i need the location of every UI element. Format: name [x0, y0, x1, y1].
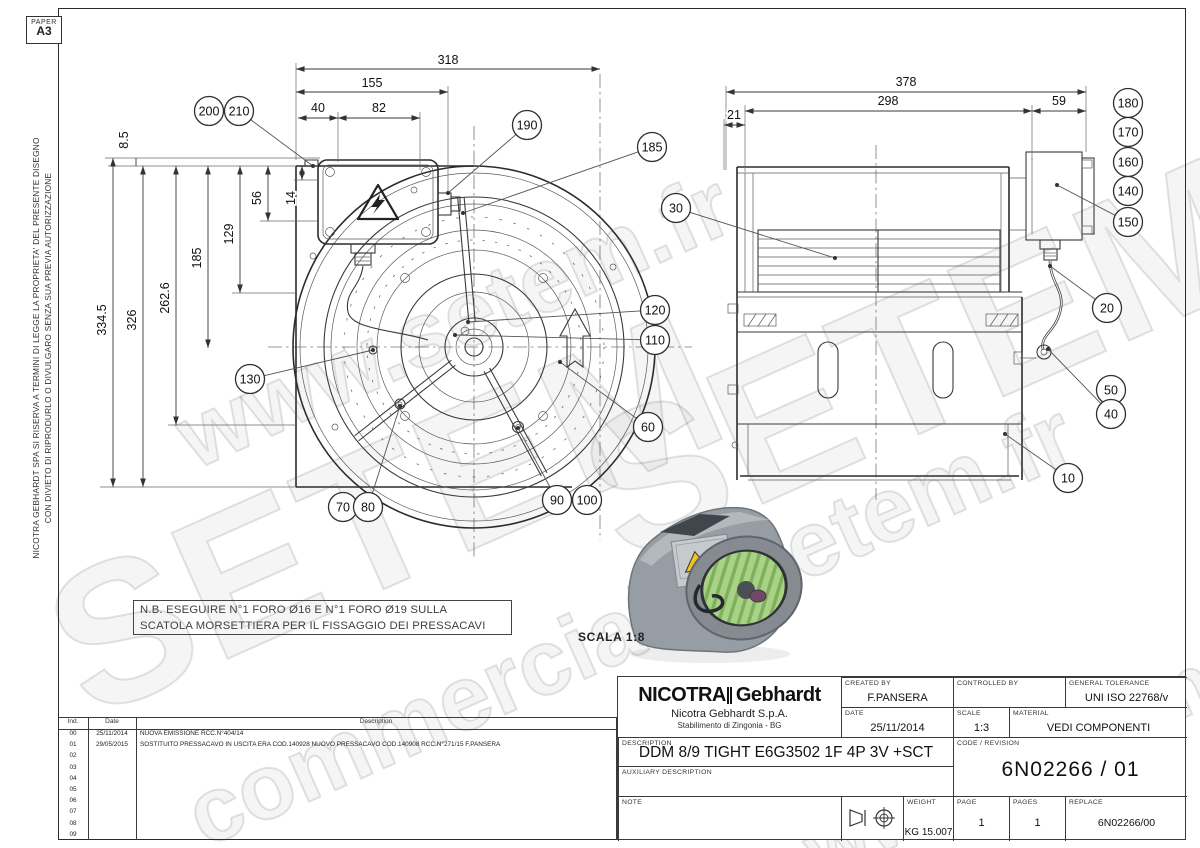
revision-table: Ind. Date Description 0025/11/2014NUOVA …	[58, 717, 617, 840]
code-revision-value: 6N02266 / 01	[954, 758, 1187, 782]
revision-row-02: 02	[58, 752, 616, 763]
note-line2: SCATOLA MORSETTIERA PER IL FISSAGGIO DEI…	[140, 619, 511, 635]
drawing-sheet: SETEM SETEM www.setem.fr commercial@sete…	[0, 0, 1200, 848]
code-revision-label: CODE / REVISION	[957, 740, 1019, 747]
material-value: VEDI COMPONENTI	[1010, 722, 1187, 734]
description-value: DDM 8/9 TIGHT E6G3502 1F 4P 3V +SCT	[619, 744, 953, 762]
auxiliary-description-label: AUXILIARY DESCRIPTION	[622, 769, 712, 776]
paper-size: A3	[27, 26, 61, 37]
revision-row-01: 0129/05/2015SOSTITUITO PRESSACAVO IN USC…	[58, 741, 616, 752]
note-line1: N.B. ESEGUIRE N°1 FORO Ø16 E N°1 FORO Ø1…	[140, 603, 511, 619]
revision-row-09: 09	[58, 831, 616, 842]
revision-row-06: 06	[58, 797, 616, 808]
pages-label: PAGES	[1013, 799, 1037, 806]
revision-row-08: 08	[58, 820, 616, 831]
scale-label: SCALE	[957, 710, 981, 717]
replace-label: REPLACE	[1069, 799, 1103, 806]
plant-name: Stabilimento di Zingonia - BG	[677, 721, 781, 730]
weight-value: KG 15.007	[904, 827, 953, 838]
logo-left: NICOTRA	[638, 684, 726, 707]
rev-header-description: Description	[136, 718, 616, 725]
pages-cell: PAGES 1	[1009, 796, 1065, 841]
controlled-by-label: CONTROLLED BY	[957, 680, 1018, 687]
company-name: Nicotra Gebhardt S.p.A.	[671, 708, 788, 720]
logo-separator	[727, 687, 729, 704]
revision-row-03: 03	[58, 764, 616, 775]
created-by-cell: CREATED BY F.PANSERA	[841, 677, 953, 707]
weight-cell: WEIGHT KG 15.007	[903, 796, 953, 841]
material-label: MATERIAL	[1013, 710, 1049, 717]
date-value: 25/11/2014	[842, 722, 953, 734]
page-label: PAGE	[957, 799, 977, 806]
rev-header-date: Date	[88, 718, 136, 725]
logo-cell: NICOTRA Gebhardt Nicotra Gebhardt S.p.A.…	[618, 677, 841, 737]
logo-right: Gebhardt	[736, 684, 821, 707]
auxiliary-description-cell: AUXILIARY DESCRIPTION	[618, 766, 953, 796]
projection-symbol-cell	[841, 796, 903, 841]
material-cell: MATERIAL VEDI COMPONENTI	[1009, 707, 1187, 737]
scale-cell: SCALE 1:3	[953, 707, 1009, 737]
replace-value: 6N02266/00	[1066, 817, 1187, 829]
nicotra-gebhardt-logo: NICOTRA Gebhardt	[638, 684, 821, 707]
revision-row-00: 0025/11/2014NUOVA EMISSIONE RCC.N°404/14	[58, 730, 616, 741]
general-tolerance-value: UNI ISO 22768/v	[1066, 692, 1187, 704]
scale-value: 1:3	[954, 722, 1009, 734]
created-by-value: F.PANSERA	[842, 692, 953, 704]
revision-row-04: 04	[58, 775, 616, 786]
rev-header-ind: Ind.	[58, 718, 88, 725]
page-value: 1	[954, 817, 1009, 829]
revision-row-05: 05	[58, 786, 616, 797]
projection-symbol-icon	[842, 797, 902, 840]
paper-size-box: PAPER A3	[26, 16, 62, 44]
note-label: NOTE	[622, 799, 642, 806]
disclaimer-line1: NICOTRA GEBHARDT SPA SI RISERVA A TERMIN…	[31, 48, 43, 648]
iso-scale-label: SCALA 1:8	[578, 630, 645, 644]
disclaimer-line2: CON DIVIETO DI RIPRODURLO O DIVULGARO SE…	[43, 48, 55, 648]
description-cell: DESCRIPTION DDM 8/9 TIGHT E6G3502 1F 4P …	[618, 737, 953, 766]
pages-value: 1	[1010, 817, 1065, 829]
page-cell: PAGE 1	[953, 796, 1009, 841]
ownership-disclaimer: NICOTRA GEBHARDT SPA SI RISERVA A TERMIN…	[31, 48, 55, 648]
note-cell: NOTE	[618, 796, 841, 841]
general-tolerance-label: GENERAL TOLERANCE	[1069, 680, 1150, 687]
date-label: DATE	[845, 710, 864, 717]
controlled-by-cell: CONTROLLED BY	[953, 677, 1065, 707]
revision-header: Ind. Date Description	[58, 718, 616, 730]
replace-cell: REPLACE 6N02266/00	[1065, 796, 1187, 841]
date-cell: DATE 25/11/2014	[841, 707, 953, 737]
drilling-note: N.B. ESEGUIRE N°1 FORO Ø16 E N°1 FORO Ø1…	[133, 600, 512, 635]
general-tolerance-cell: GENERAL TOLERANCE UNI ISO 22768/v	[1065, 677, 1187, 707]
created-by-label: CREATED BY	[845, 680, 891, 687]
code-revision-cell: CODE / REVISION 6N02266 / 01	[953, 737, 1187, 796]
title-block: NICOTRA Gebhardt Nicotra Gebhardt S.p.A.…	[617, 676, 1186, 840]
revision-row-07: 07	[58, 808, 616, 819]
weight-label: WEIGHT	[907, 799, 936, 806]
